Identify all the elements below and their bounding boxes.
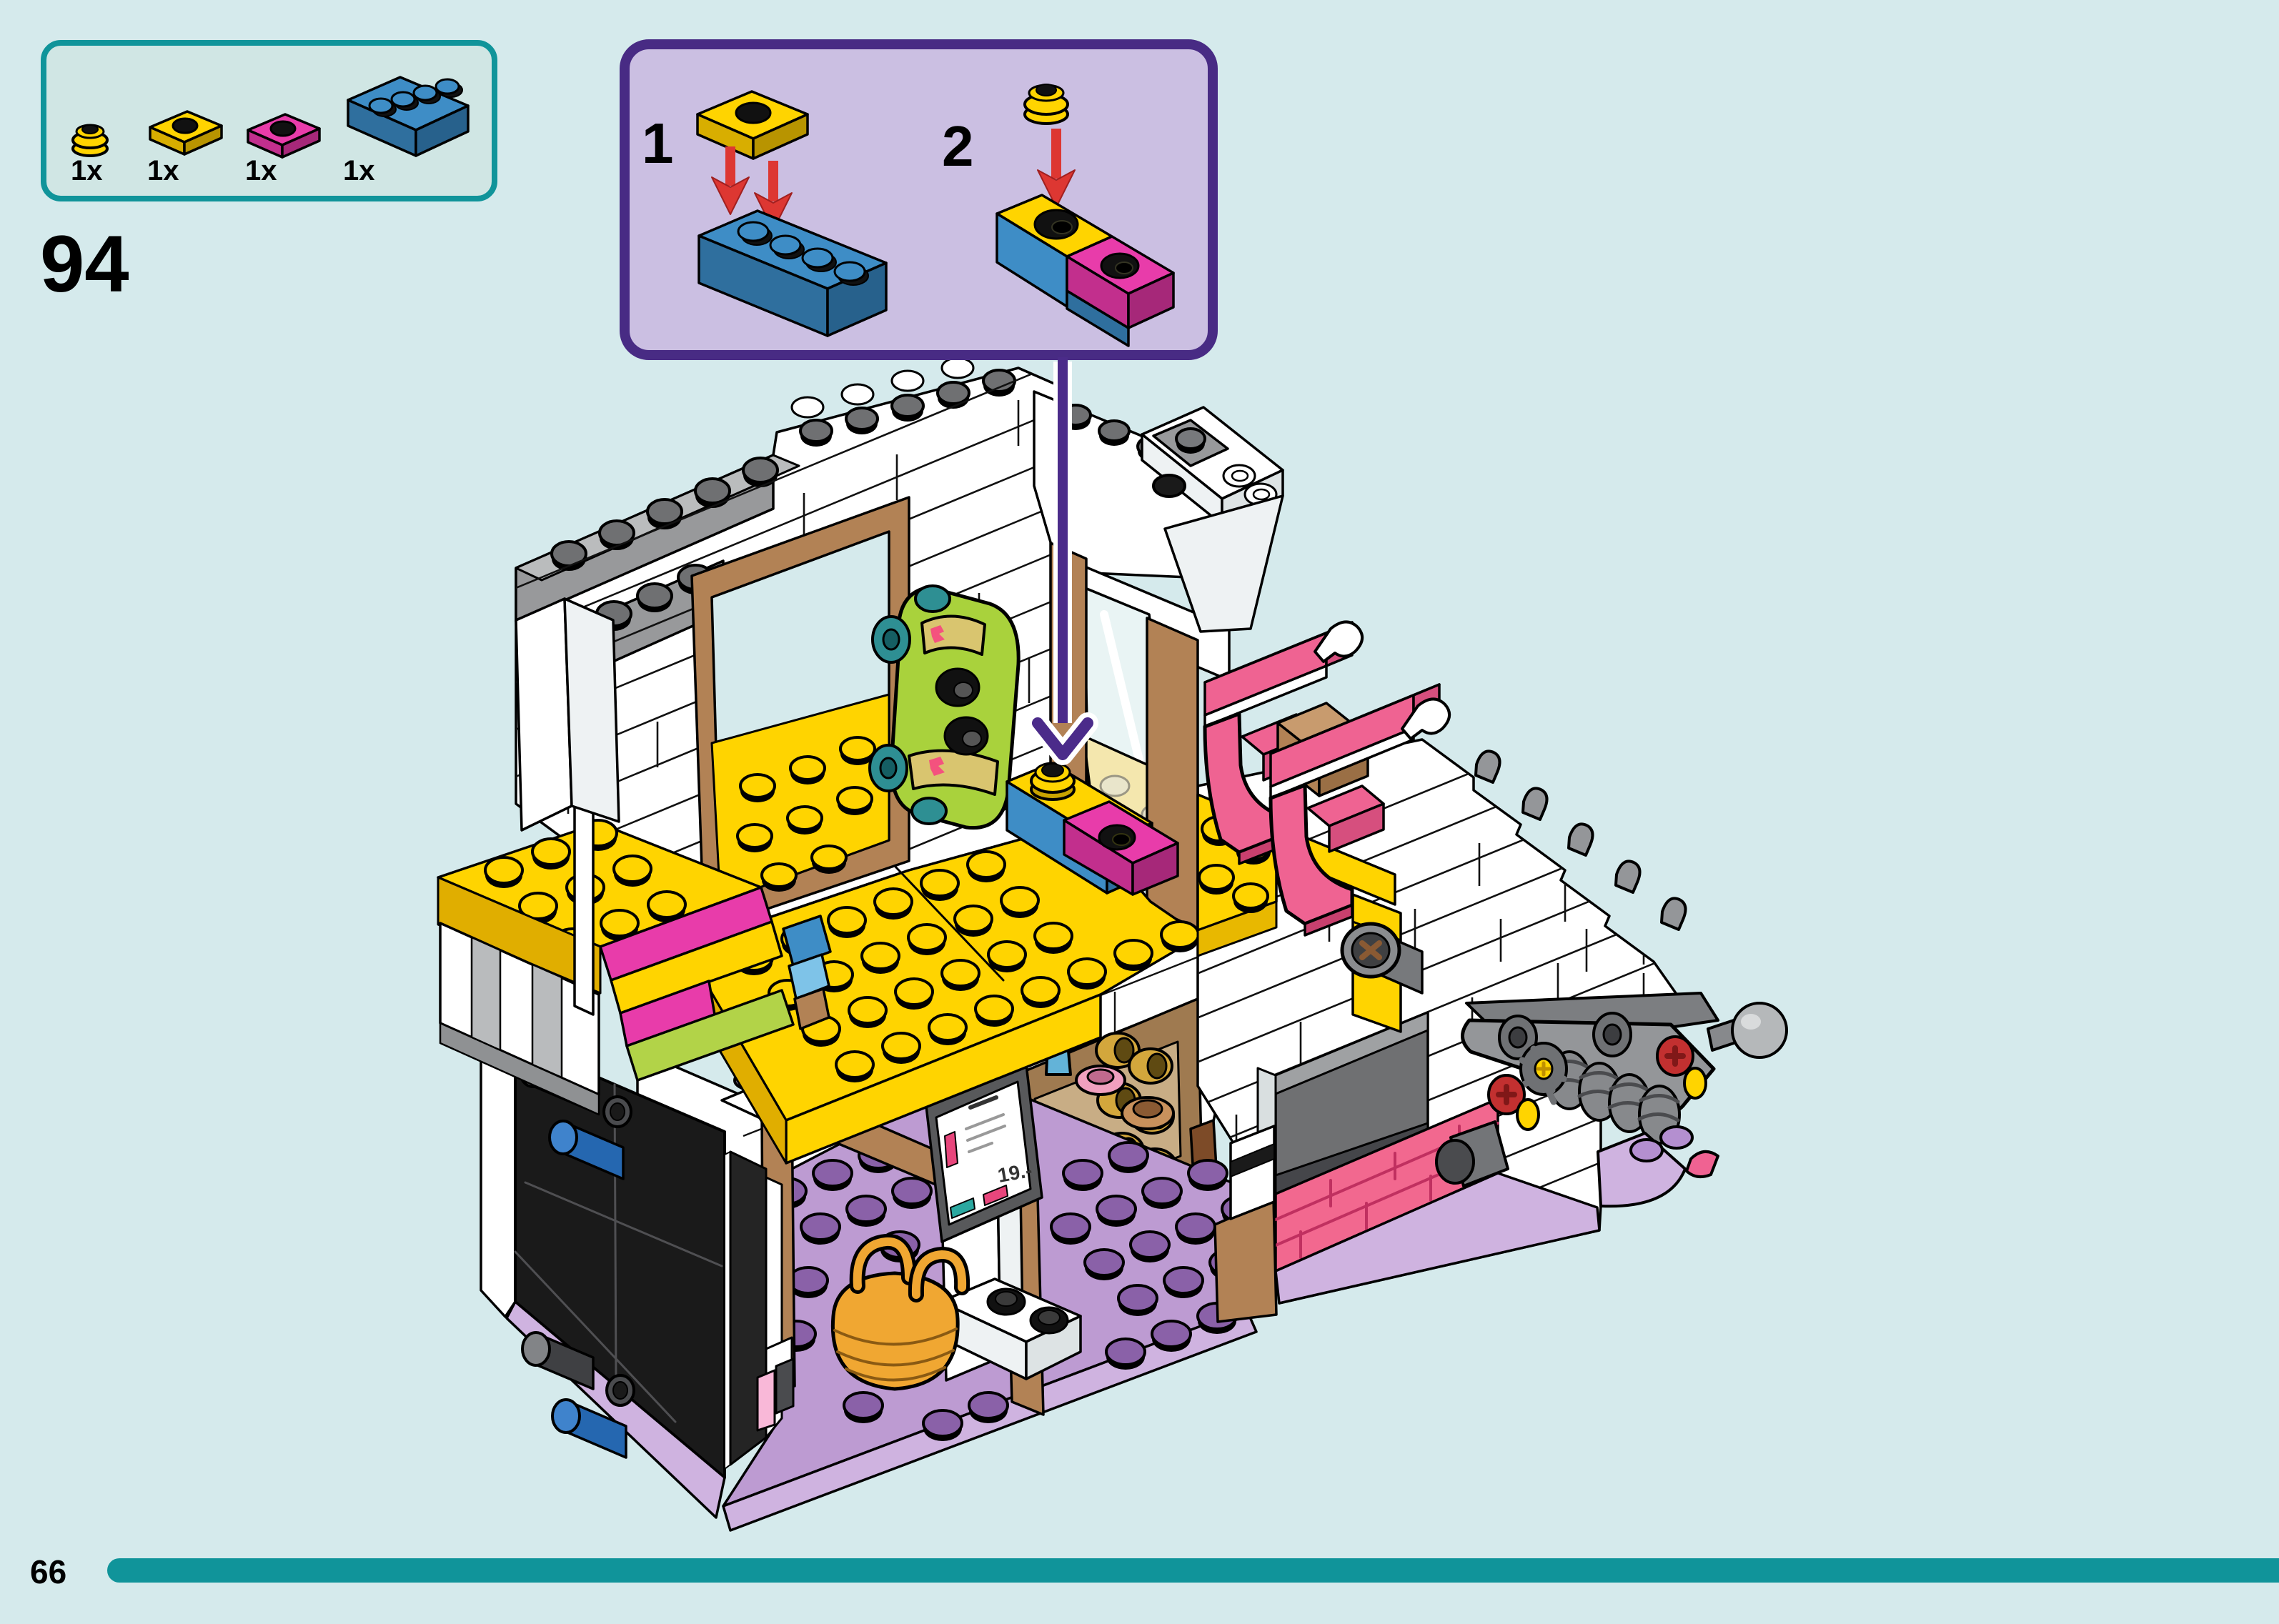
svg-text:66: 66 [30, 1553, 66, 1590]
svg-text:2: 2 [942, 114, 974, 178]
svg-text:1x: 1x [245, 155, 277, 186]
svg-text:1x: 1x [343, 155, 375, 186]
svg-text:1: 1 [642, 111, 674, 175]
svg-text:1x: 1x [71, 155, 103, 186]
svg-text:1x: 1x [147, 155, 179, 186]
svg-text:94: 94 [40, 219, 129, 309]
